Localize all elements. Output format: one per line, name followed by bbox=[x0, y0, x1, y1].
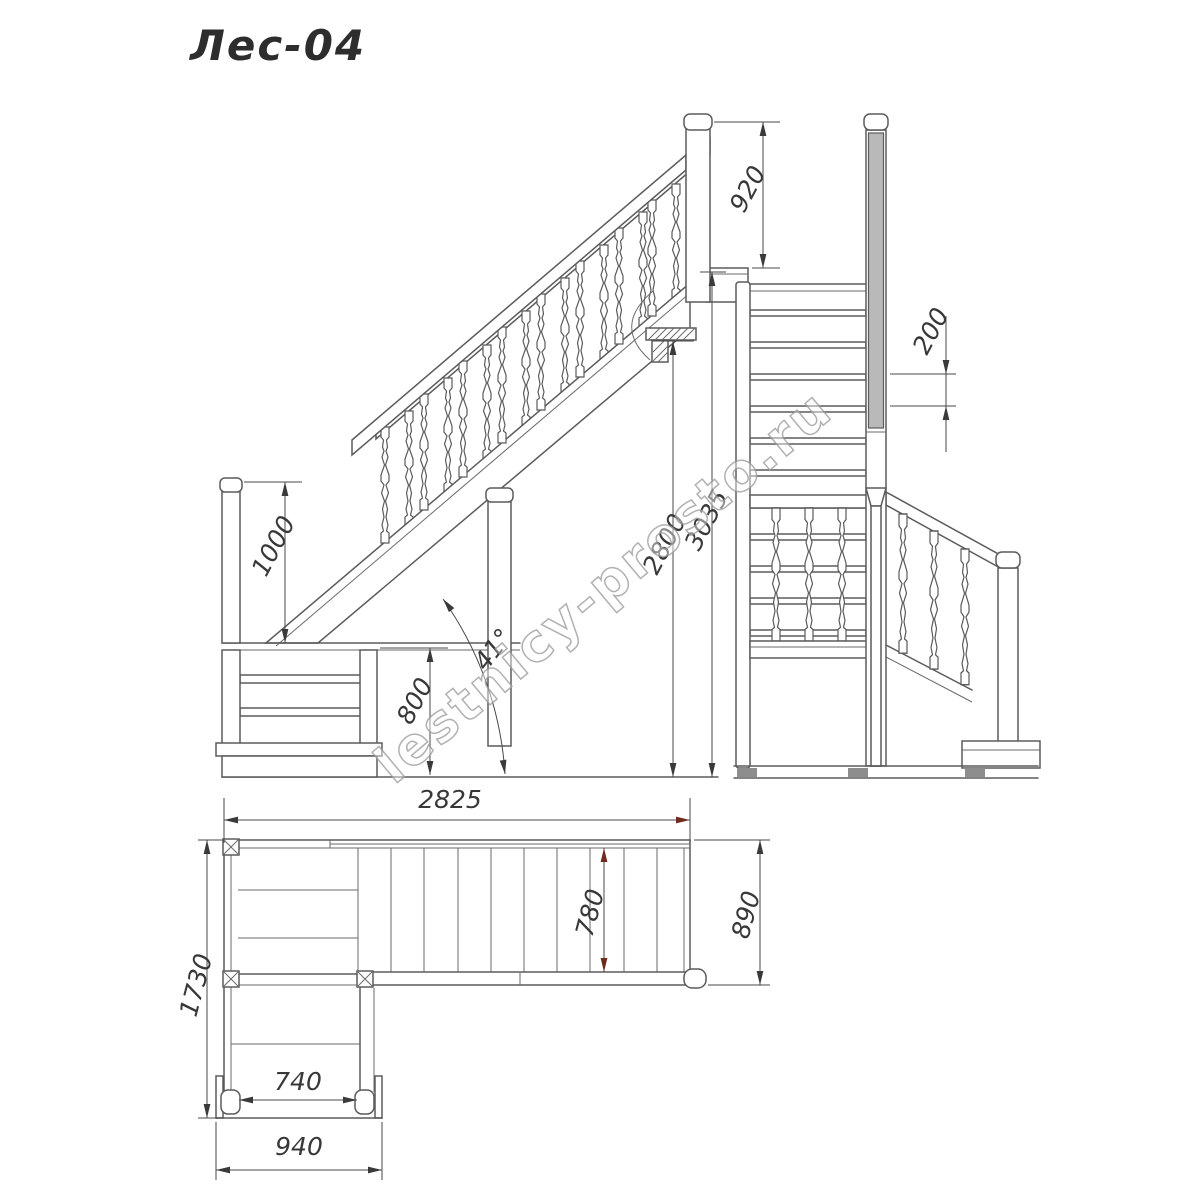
bottom-newel bbox=[962, 552, 1040, 768]
base-block bbox=[222, 756, 377, 777]
bottom-newel-cap bbox=[996, 552, 1020, 568]
baluster bbox=[444, 378, 452, 494]
step-back bbox=[240, 675, 362, 683]
baluster bbox=[648, 200, 656, 316]
baluster bbox=[838, 508, 846, 641]
baluster bbox=[561, 278, 569, 394]
foot-pad bbox=[848, 768, 868, 777]
tall-newel-lower bbox=[871, 506, 881, 766]
newel-cap bbox=[220, 478, 242, 492]
dim-label-940: 940 bbox=[275, 1132, 323, 1161]
dimension-920: 920 bbox=[714, 122, 780, 268]
newel-markers bbox=[223, 839, 373, 987]
dim-label-920: 920 bbox=[724, 161, 772, 217]
baluster bbox=[805, 508, 813, 641]
baluster bbox=[930, 531, 938, 669]
foot-pad bbox=[737, 768, 757, 777]
baluster bbox=[615, 228, 623, 344]
side-plate bbox=[375, 1076, 382, 1118]
dim-label-1730: 1730 bbox=[174, 951, 218, 1020]
top-newel-post bbox=[686, 128, 710, 302]
baluster bbox=[420, 394, 428, 510]
staircase-drawing: 1000 800 2800 3035 bbox=[0, 0, 1200, 1200]
left-post bbox=[736, 282, 750, 768]
step-block bbox=[962, 741, 1040, 768]
lower-stringer-inner bbox=[886, 657, 972, 702]
tall-newel-cap bbox=[864, 114, 888, 130]
foot-pad bbox=[965, 768, 985, 777]
baluster bbox=[639, 212, 647, 328]
tread bbox=[750, 342, 866, 348]
newel-post bbox=[222, 490, 240, 643]
dimension-890: 890 bbox=[694, 840, 770, 985]
bottom-newel-post bbox=[998, 568, 1018, 742]
baluster bbox=[600, 245, 608, 361]
newel-cap-plan bbox=[221, 1090, 240, 1114]
baluster bbox=[498, 327, 506, 443]
dimension-740: 740 bbox=[239, 1067, 357, 1103]
baluster bbox=[405, 411, 413, 527]
dim-label-2825: 2825 bbox=[418, 785, 482, 814]
tall-newel bbox=[864, 114, 888, 766]
left-stringer-board bbox=[222, 650, 240, 745]
tread bbox=[750, 310, 866, 316]
dim-label-200: 200 bbox=[907, 303, 955, 359]
handrail bbox=[352, 155, 686, 455]
baluster bbox=[961, 549, 969, 685]
plan-treads bbox=[358, 848, 657, 972]
landing-rail bbox=[750, 495, 868, 508]
dimension-2825: 2825 bbox=[224, 785, 690, 843]
dim-label-1000: 1000 bbox=[246, 511, 301, 581]
baluster bbox=[522, 311, 530, 427]
baluster bbox=[899, 514, 907, 653]
baluster bbox=[459, 361, 467, 477]
right-stringer-board bbox=[360, 650, 377, 745]
baluster bbox=[672, 184, 680, 300]
baluster bbox=[483, 345, 491, 461]
landing-fascia bbox=[750, 641, 868, 658]
flight-newel-cap bbox=[486, 488, 513, 502]
newel-cap-plan bbox=[355, 1090, 374, 1114]
dim-label-740: 740 bbox=[274, 1067, 322, 1096]
dimension-940: 940 bbox=[216, 1122, 382, 1180]
watermark-text: lestnicy-prosto.ru bbox=[364, 379, 844, 796]
top-newel-cap bbox=[684, 114, 712, 130]
tall-newel-upper bbox=[869, 133, 884, 428]
tread bbox=[750, 374, 866, 380]
baluster bbox=[772, 508, 780, 641]
baluster bbox=[576, 261, 584, 377]
rail-end-cap bbox=[684, 969, 706, 988]
step-back bbox=[240, 708, 362, 716]
baluster bbox=[537, 294, 545, 410]
drawing-title: Лес-04 bbox=[188, 21, 366, 70]
plinth bbox=[216, 743, 382, 756]
blueprint-page: 1000 800 2800 3035 bbox=[0, 0, 1200, 1200]
plan-view: 2825 1730 890 780 bbox=[174, 785, 770, 1180]
baluster bbox=[381, 427, 389, 543]
dimension-200: 200 bbox=[890, 303, 956, 452]
